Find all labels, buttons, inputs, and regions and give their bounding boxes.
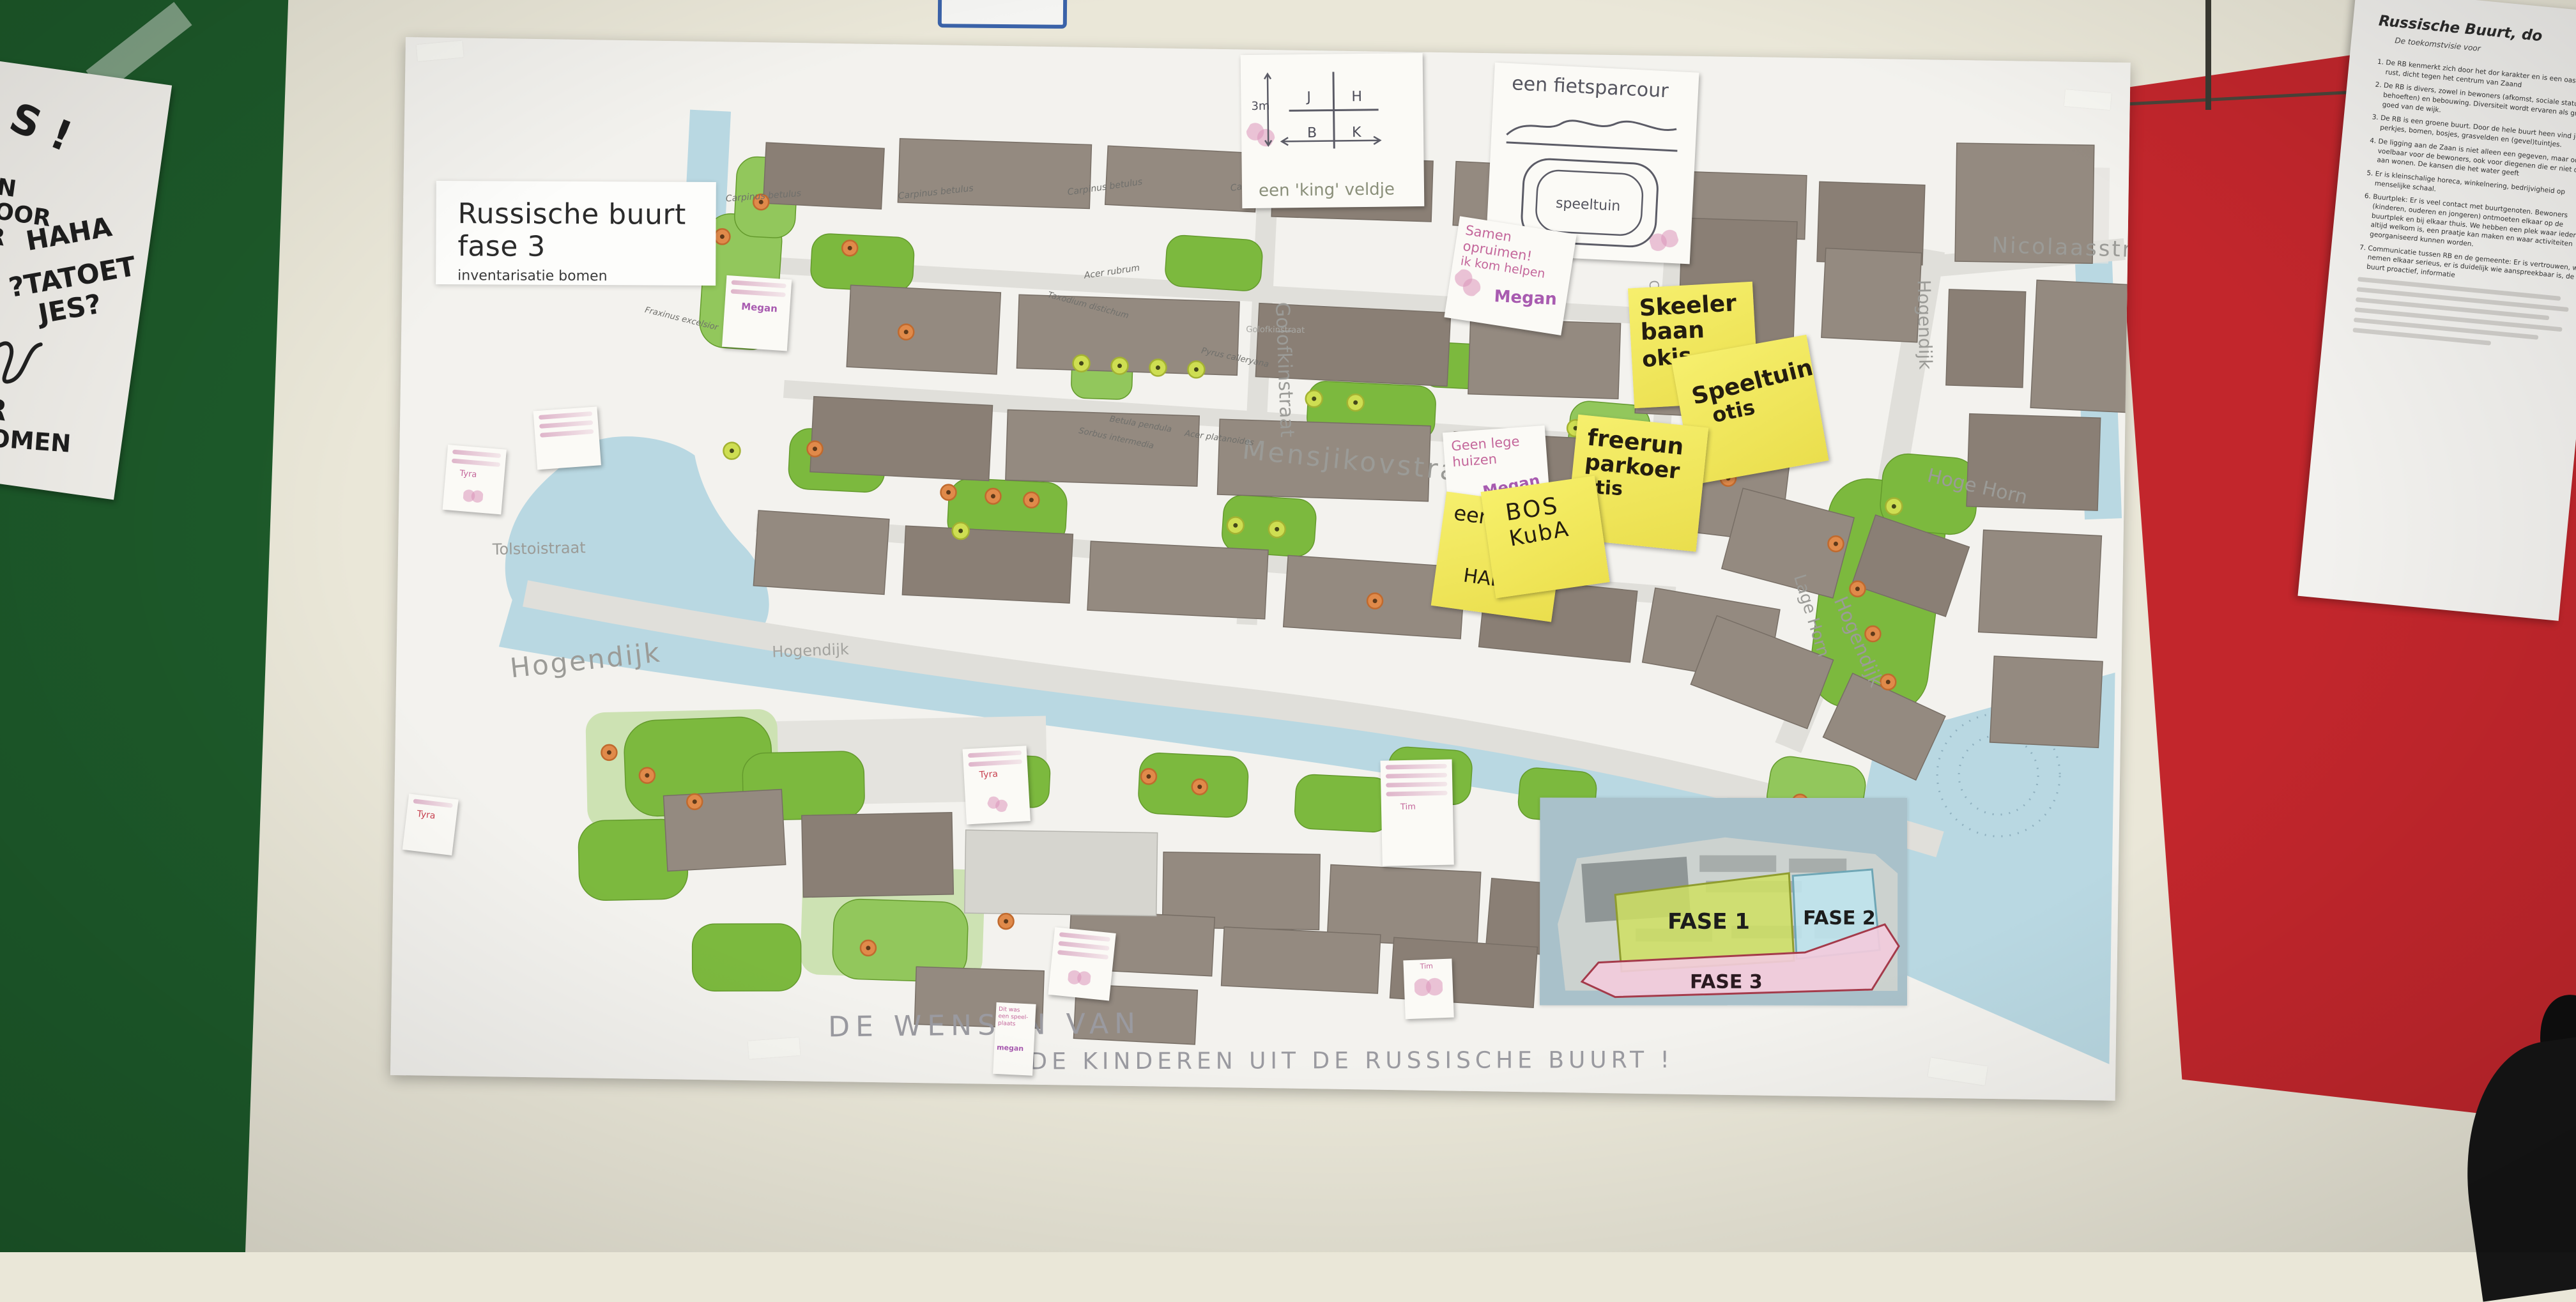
note-scribble xyxy=(533,406,601,470)
map-subtitle: inventarisatie bomen xyxy=(457,268,716,285)
fase1-label: FASE 1 xyxy=(1667,909,1750,935)
tape-strip xyxy=(748,1038,801,1059)
note-bos-kuba: BOS KubA xyxy=(1481,476,1610,599)
street-label-hogendijk-small: Hogendijk xyxy=(772,640,849,661)
note-signature: Megan xyxy=(741,301,790,316)
note-tim: Tim xyxy=(1403,959,1453,1020)
wall-sign xyxy=(938,0,1067,29)
handwriting-fragment: S ! xyxy=(4,97,77,158)
king-grid-drawing: J H B K xyxy=(1276,65,1392,168)
map-title-block: Russische buurt fase 3 inventarisatie bo… xyxy=(436,181,716,286)
street-label-tolstoistraat: Tolstoistraat xyxy=(492,539,586,558)
map-poster: Nicolaasstr Hogendijk Hoge Horn Lage Hor… xyxy=(390,37,2131,1101)
signature-squiggle xyxy=(0,322,61,402)
butterfly-icon xyxy=(1414,977,1443,997)
butterfly-icon xyxy=(1068,969,1091,986)
note-signature: megan xyxy=(997,1043,1034,1053)
wall-corner-line xyxy=(2205,0,2211,110)
note-signature: Tyra xyxy=(979,767,1028,781)
handwriting-fragment: N xyxy=(0,176,18,201)
butterfly-icon xyxy=(463,489,483,504)
note-scribble: Tyra xyxy=(402,793,459,855)
fiets-inner-label: speeltuin xyxy=(1555,195,1620,215)
note-signature: Megan xyxy=(1494,287,1567,310)
king-note-caption: een 'king' veldje xyxy=(1259,180,1395,200)
handwriting-fragment: AR xyxy=(0,222,6,250)
map-title: Russische buurt fase 3 xyxy=(457,197,716,264)
fase2-label: FASE 2 xyxy=(1803,907,1876,930)
note-scribble xyxy=(1048,927,1115,1000)
fase3-label: FASE 3 xyxy=(1690,971,1763,993)
note-signature: Tim xyxy=(1420,962,1434,971)
butterfly-icon xyxy=(986,794,1009,814)
note-scribble: Tyra xyxy=(443,445,507,514)
street-label-golofkinstraat-small: Golofkinstraat xyxy=(1246,325,1305,335)
street-label-hogendijk-right: Hogendijk xyxy=(1913,280,1936,371)
note-scribble: Tim xyxy=(1381,760,1454,866)
note-scribble: Tyra xyxy=(963,746,1031,824)
king-grid-letter: H xyxy=(1351,89,1362,105)
note-line: plaats xyxy=(998,1020,1035,1029)
note-signature: Tyra xyxy=(417,809,457,824)
poster-caption-left: DE WENSEN VAN xyxy=(828,1007,1141,1044)
drawing-note-king-veld: J H B K 3m een 'king' veldje xyxy=(1241,53,1425,208)
note-signature: Tim xyxy=(1400,801,1453,812)
street-label-nicolaasstr: Nicolaasstr xyxy=(1991,233,2131,263)
phase-inset-map: FASE 1 FASE 2 FASE 3 xyxy=(1540,797,1907,1006)
king-grid-letter: J xyxy=(1305,89,1311,105)
note-samen-opruimen: Samen opruimen! ik kom helpen Megan xyxy=(1444,216,1576,335)
measure-label: 3m xyxy=(1251,100,1269,113)
note-scribble: Megan xyxy=(722,275,792,351)
note-dit-was: Dit was een speel- plaats megan xyxy=(993,1002,1036,1076)
note-signature: Tyra xyxy=(459,469,505,482)
handwriting-fragment: GEKOMEN xyxy=(0,422,72,456)
king-grid-letter: K xyxy=(1352,125,1361,141)
poster-caption-right: DE KINDEREN UIT DE RUSSISCHE BUURT ! xyxy=(1029,1047,1674,1075)
king-grid-letter: B xyxy=(1307,125,1317,141)
